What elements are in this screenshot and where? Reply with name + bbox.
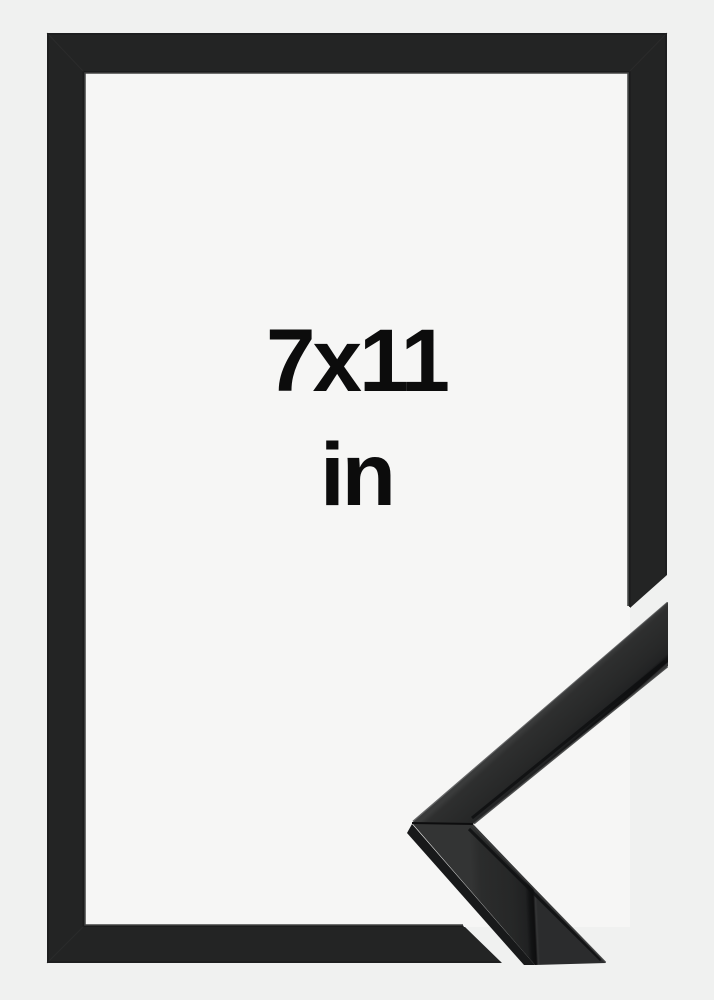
molding-miter-seam — [412, 823, 473, 824]
frame-unit-label: in — [83, 430, 630, 519]
frame-size-label: 7x11 — [83, 316, 630, 405]
product-photo: 7x11 in — [0, 0, 714, 1000]
